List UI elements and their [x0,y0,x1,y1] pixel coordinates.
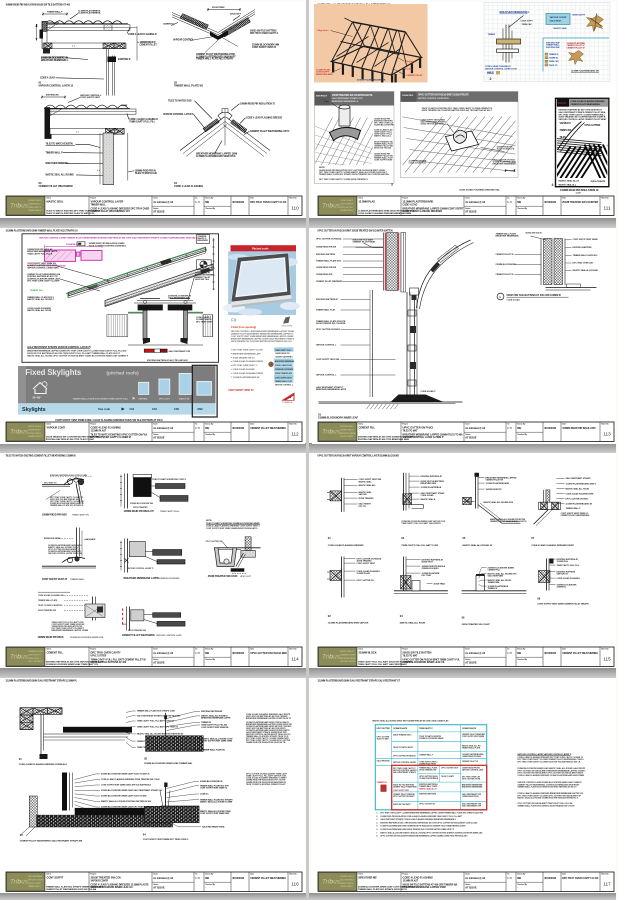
svg-text:TIMBER WALL P: TIMBER WALL P [28,885,43,888]
svg-text:MASTIC SEAL: MASTIC SEAL [47,199,64,203]
svg-text:215MM BLOCKWORK: 215MM BLOCKWORK [158,577,180,579]
svg-text:Drawn By: Drawn By [205,872,214,875]
svg-text:1 : 5: 1 : 5 [195,427,200,430]
svg-text:1 : 5: 1 : 5 [195,876,200,879]
svg-text:02: 02 [144,756,147,760]
svg-text:CODE 4 LEAD: CODE 4 LEAD [40,76,55,79]
svg-text:MASTIC SEAL ALL R: MASTIC SEAL ALL R [558,179,579,182]
svg-text:25X38 TREATED SW C: 25X38 TREATED SW C [393,733,412,736]
svg-text:116: 116 [291,881,299,886]
svg-text:50X25 SW TILE B: 50X25 SW TILE B [525,233,542,235]
svg-text:MASTIC SEAL A: MASTIC SEAL A [28,425,42,428]
svg-text:115: 115 [603,656,611,661]
svg-text:Date: Date [250,872,254,875]
svg-text:EXISTING RAFTERS AT 400 CTRS T: EXISTING RAFTERS AT 400 CTRS TILES TO MA… [46,438,95,441]
svg-text:BREATHER MEMBRANE L: BREATHER MEMBRANE L [492,162,517,165]
svg-text:VAPOUR CONTROL LAYER EXIS: VAPOUR CONTROL LAYER EXIS [418,96,449,99]
svg-text:25X38 TREATED SW COUNTER: 25X38 TREATED SW COUNTER [562,200,598,203]
svg-text:TIMBER WALL PLATE M12 STRAPS 5: TIMBER WALL PLATE M12 STRAPS 50X25 SW TI… [358,887,408,890]
svg-text:CODE 4 LEAD FLASHING DRESSED 2: CODE 4 LEAD FLASHING DRESSED 25X38 TREAT… [101,778,160,781]
svg-text:12.5MM PLASTERBOARD SKIM GALV: 12.5MM PLASTERBOARD SKIM GALV RESTRAINT … [6,679,78,682]
svg-text:100MM RIGID PIR INSULATIO: 100MM RIGID PIR INSULATIO [562,427,595,430]
svg-text:CONT SOFFIT VEN: CONT SOFFIT VEN [393,790,409,792]
svg-text:CONT SOFFIT VENT: CONT SOFFIT VENT [80,97,101,99]
svg-text:12.5MM PLASTERBOARD SKIM 25X38: 12.5MM PLASTERBOARD SKIM 25X38 TREATED S… [380,828,455,831]
svg-text:Scale: Scale [153,424,158,426]
svg-text:25X38 TREATED: 25X38 TREATED [358,496,374,499]
svg-text:Status: Status [153,657,158,660]
svg-text:CEMENT FILLET WEATHERING: CEMENT FILLET WEATHERING [570,103,600,106]
svg-text:12.5MM PLASTERBOARD SK: 12.5MM PLASTERBOARD SK [233,376,260,379]
svg-text:06/10/2023: 06/10/2023 [544,876,557,879]
svg-text:VAPOUR C: VAPOUR C [559,122,571,125]
svg-text:12.5MM PLASTERBOARD SKIM TIMBE: 12.5MM PLASTERBOARD SKIM TIMBER WALL PLA… [6,229,79,232]
svg-text:111: 111 [603,205,610,210]
svg-text:08: 08 [537,596,540,600]
svg-text:50X25 SW TILE BATTEN: 50X25 SW TILE BATTEN [402,650,431,654]
svg-text:215MM BLOCKWORK: 215MM BLOCKWORK [374,124,395,126]
svg-text:MASTIC SEAL ALL ROUND: MASTIC SEAL ALL ROUND [572,269,598,272]
svg-text:DPC TRAY OVER CAVITY: DPC TRAY OVER CAVITY [91,650,121,654]
svg-text:Sc: Sc [195,197,197,199]
svg-text:CODE 4 LEAD FLASHING DRESSED 2: CODE 4 LEAD FLASHING DRESSED 215MM BLO [19,762,68,765]
svg-text:TILES TO MAT: TILES TO MAT [402,654,418,657]
svg-text:CODE 4 LEAD FLASHING DRESSED: CODE 4 LEAD FLASHING DRESSED [327,543,363,546]
svg-text:VAPOUR CONTRO: VAPOUR CONTRO [340,660,356,663]
svg-text:AT ISSUE: AT ISSUE [465,660,477,664]
svg-text:EXISTING RAFTERS AT 400 CTRS V: EXISTING RAFTERS AT 400 CTRS VAPOUR [147,359,188,362]
svg-text:CONT SOFFIT VENT 25: CONT SOFFIT VENT 25 [252,46,277,48]
svg-text:50X25 SW T: 50X25 SW T [230,13,242,15]
svg-text:MASTIC SEAL ALL ROUND MASTIC S: MASTIC SEAL ALL ROUND MASTIC SEAL ALL RO… [380,831,483,834]
svg-text:Sc: Sc [507,197,509,199]
svg-text:1 : 5: 1 : 5 [195,651,200,654]
svg-text:Checked By: Checked By [205,658,216,660]
svg-text:MASTIC SEAL ALL ROUND 1: MASTIC SEAL ALL ROUND 1 [27,298,55,301]
svg-text:UPVC GUTTER ON F: UPVC GUTTER ON F [441,767,459,769]
svg-text:CONT SOFFIT V: CONT SOFFIT V [340,203,354,205]
svg-text:8.: 8. [376,835,378,837]
svg-text:Sheet No: Sheet No [601,647,609,650]
svg-text:DPC TRAY OVER CAVITY CLOSER 25: DPC TRAY OVER CAVITY CLOSER 25X38 TREATE… [319,178,368,181]
svg-text:CEMENT FILLET WEATHERIN: CEMENT FILLET WEATHERIN [39,184,73,187]
svg-text:AT ISSUE: AT ISSUE [465,436,477,440]
svg-text:Drawn By: Drawn By [205,647,214,650]
svg-text:BREATHER MEMBRANE: BREATHER MEMBRANE [495,235,519,238]
svg-text:UPVC GUTTER: UPVC GUTTER [584,125,600,127]
svg-text:Bracing: Bracing [404,68,412,70]
svg-text:Status: Status [465,882,470,885]
svg-text:Sc: Sc [507,873,509,875]
svg-text:CODE 4 L: CODE 4 L [200,792,210,795]
svg-text:CODE 4 LEAD FLASHING DR: CODE 4 LEAD FLASHING DR [38,594,64,597]
svg-text:TIMBER WALL PLAT: TIMBER WALL PLAT [275,380,293,383]
svg-text:100MM: 100MM [121,105,128,107]
svg-text:UPVC GUTTER ON FASCIA BRKT 25X: UPVC GUTTER ON FASCIA BRKT 25X38 TREATE [418,93,469,96]
svg-text:Sheet No: Sheet No [289,423,297,426]
svg-text:Client: Client [46,872,51,875]
svg-text:DPC TRAY OVER CAV: DPC TRAY OVER CAV [572,262,593,265]
svg-text:VAPOUR CONTROL LAYER 12.5MM P: VAPOUR CONTROL LAYER 12.5MM P [402,436,443,439]
svg-text:100MM RIGID PIR INS: 100MM RIGID PIR INS [316,267,337,269]
svg-text:Sheet No: Sheet No [601,196,609,199]
svg-text:Date: Date [250,647,254,650]
svg-text:Tribus: Tribus [322,878,341,885]
svg-text:CEMENT FILLET WEATHERING CONT: CEMENT FILLET WEATHERING CONT S [490,520,527,523]
svg-text:Client: Client [358,196,363,199]
svg-text:25X38 TREATED SW COUNTER: 25X38 TREATED SW COUNTER [316,322,346,325]
svg-text:25X38 TREATED: 25X38 TREATED [133,505,148,508]
svg-text:25X38 TREA: 25X38 TREA [433,582,445,585]
svg-text:Project: Project [402,647,408,650]
svg-text:As indicated @ A3: As indicated @ A3 [153,200,174,203]
svg-text:TILES TO MATCH EXISTING TILES: TILES TO MATCH EXISTING TILES TO MATCH E… [46,211,95,214]
svg-text:Checked By: Checked By [517,658,528,660]
svg-text:03: 03 [401,535,404,539]
svg-text:100MM RIGID PIR INSULATI: 100MM RIGID PIR INSULATI [124,509,154,512]
svg-text:12.5M: 12.5M [575,192,581,194]
svg-text:Status: Status [153,206,158,209]
svg-text:TIMBER WALL PLATE M12: TIMBER WALL PLATE M12 [572,254,598,257]
svg-text:12.5MM PLASTERBOA: 12.5MM PLASTERBOA [419,777,439,780]
svg-text:CONT SOFFIT VENT 25MM 12.: CONT SOFFIT VENT 25MM 12. [200,787,228,789]
svg-text:7.: 7. [376,832,378,834]
svg-text:12.5MM PLASTERBOARD: 12.5MM PLASTERBOARD [485,481,509,484]
svg-text:100MM RIGID PIR IN: 100MM RIGID PIR IN [461,796,478,798]
svg-text:Client: Client [46,647,51,650]
svg-text:TIMBER WALL PLATE M12 STRAPS 2: TIMBER WALL PLATE M12 STRAPS 25X38 TREAT… [517,804,575,807]
svg-text:BREATHER MEMBRAN: BREATHER MEMBRAN [275,360,295,363]
svg-text:Drawn By: Drawn By [517,872,526,875]
svg-text:100MM RIGID PIR INSULATION 12.: 100MM RIGID PIR INSULATION 12. [560,188,599,191]
svg-text:UPVC GUTTER: UPVC GUTTER [91,655,107,657]
svg-text:25X38 TREAT: 25X38 TREAT [212,6,225,9]
svg-text:TIMBER WALL PLATE M12 STRAPS E: TIMBER WALL PLATE M12 STRAPS EXISTING RA… [517,785,577,788]
svg-text:CONT SOFFIT VENT: CONT SOFFIT VENT [275,377,293,379]
svg-text:12.5MM PLAST: 12.5MM PLAST [356,571,371,574]
svg-text:CONT SOFFIT VENT 25MM 100MM RI: CONT SOFFIT VENT 25MM 100MM RIGID PIR IN… [206,526,258,529]
svg-text:EXISTING RAFTERS AT: EXISTING RAFTERS AT [316,298,339,301]
svg-text:215MM BLOCKWORK INNER LEAF GAL: 215MM BLOCKWORK INNER LEAF GALV RESTRAIN… [101,789,163,792]
svg-text:CEMENT FILLET WEATHERING: CEMENT FILLET WEATHERING [562,651,598,654]
svg-text:CEMENT FILLET: CEMENT FILLET [340,210,355,212]
svg-text:AT ISSUE: AT ISSUE [465,209,477,213]
svg-text:12.5MM PLAS: 12.5MM PLAS [358,199,375,203]
svg-text:TIMBER W: TIMBER W [201,722,211,724]
svg-text:GALV RESTRAINT STRAPS: GALV RESTRAINT STRAPS [565,477,591,480]
svg-text:07: 07 [531,535,534,539]
svg-text:Status: Status [465,657,470,660]
svg-text:UPVC GUTTER ON FASC: UPVC GUTTER ON FASC [565,497,588,500]
svg-text:MASTIC SE: MASTIC SE [179,398,190,401]
svg-text:CODE 4 LEAD FLAS: CODE 4 LEAD FLAS [275,364,293,367]
svg-text:CEMENT FILLET WEATHERI: CEMENT FILLET WEATHERI [393,785,417,788]
svg-text:CODE 4 LEAD FLASHING DRESSED 1: CODE 4 LEAD FLASHING DRESSED 12.5MM PLAS… [517,773,584,776]
svg-text:EXISTING: EXISTING [139,399,148,401]
svg-text:MASTIC SEAL ALL ROUND EXIS: MASTIC SEAL ALL ROUND EXIS [483,501,513,504]
svg-text:12.5MM PLASTERBOARD SK: 12.5MM PLASTERBOARD SK [565,502,592,505]
svg-text:Status: Status [153,433,158,436]
svg-text:1: 1 [499,295,501,299]
svg-text:DPC TRAY OVER CAVITY CLOS: DPC TRAY OVER CAVITY CLOS [250,200,286,203]
svg-text:CODE 4 LEAD: CODE 4 LEAD [506,298,520,301]
svg-text:DPC TRAY OVER CAVITY C: DPC TRAY OVER CAVITY C [250,31,279,34]
svg-text:25X38 TREATED SW COUN: 25X38 TREATED SW COUN [208,574,238,577]
svg-text:MASTIC SEAL ALL ROUN: MASTIC SEAL ALL ROUN [399,621,425,624]
svg-text:As indicated @ A3: As indicated @ A3 [153,651,174,654]
svg-text:EXISTING RAFT: EXISTING RAFT [340,425,354,428]
svg-text:TILES TO MATCH EXISTING CONT S: TILES TO MATCH EXISTING CONT S [152,478,187,481]
svg-text:CEMENT FILLET WEATHERING: CEMENT FILLET WEATHERING [250,427,286,430]
svg-text:C06: C06 [174,407,179,411]
svg-text:CEMENT FILL: CEMENT FILL [487,569,500,571]
svg-text:As indicated @ A3: As indicated @ A3 [465,651,486,654]
svg-text:CEMENT FILLET WEATHERING 50X25: CEMENT FILLET WEATHERING 50X25 SW TILE B… [46,887,96,890]
svg-text:CONT SOFFIT VENT 25MM DPC TRAY: CONT SOFFIT VENT 25MM DPC TRAY OVER C [143,838,189,841]
svg-text:TIMBER WALL PLATE M1: TIMBER WALL PLATE M1 [202,748,226,751]
svg-text:MASTIC SEAL ALL ROUND EXISTING: MASTIC SEAL ALL ROUND EXISTING RAFTERS A… [137,732,184,735]
svg-text:UPVC GUTTER: UPVC GUTTER [376,728,390,730]
svg-text:3: 3 [391,182,393,186]
svg-text:Date: Date [562,872,566,875]
svg-text:EXISTING RAFTERS: EXISTING RAFTERS [572,246,592,249]
svg-text:(pitched roofs): (pitched roofs) [107,371,140,376]
svg-text:Sheet No: Sheet No [601,423,609,426]
svg-text:TIMBER WALL P: TIMBER WALL P [565,507,581,510]
svg-text:UPVC GUTTER ON FASCIA: UPVC GUTTER ON FASCIA [316,238,342,241]
svg-text:CEMENT FILLET WEATHERING UPVC: CEMENT FILLET WEATHERING UPVC [250,130,290,133]
svg-text:Sc: Sc [195,648,197,650]
svg-text:BREATHER ME: BREATHER ME [358,875,377,879]
svg-text:As indicated @ A3: As indicated @ A3 [153,876,174,879]
svg-text:Tribus: Tribus [322,202,341,209]
svg-text:04: 04 [143,832,146,836]
svg-text:06/10/2023: 06/10/2023 [544,200,557,203]
svg-text:215MM BLOCKWORK INNER LEAF: 215MM BLOCKWORK INNER LEAF [318,416,359,419]
svg-text:2.: 2. [376,815,378,817]
svg-text:Sc: Sc [195,873,197,875]
svg-text:VAPOUR CONTROL LAYER CEMENT FI: VAPOUR CONTROL LAYER CEMENT FILLET WEAT [558,118,607,121]
svg-text:TILES TO MATCH EXI: TILES TO MATCH EXI [135,171,158,174]
svg-text:VAPOUR CONTROL LAYER TI: VAPOUR CONTROL LAYER TI [127,567,154,570]
svg-text:CEMENT FILLET W: CEMENT FILLET W [495,274,513,276]
svg-text:Sc: Sc [195,424,197,426]
svg-text:BREATHER MEMBRANE: BREATHER MEMBRANE [461,785,482,788]
svg-text:NOTE:: NOTE: [319,167,325,169]
svg-text:25X38 TREATED SW COUNT: 25X38 TREATED SW COUNT [461,622,490,625]
svg-text:Scale: Scale [465,424,470,426]
svg-text:75MM CAVITY F: 75MM CAVITY F [419,727,433,730]
svg-text:75MM CAVITY FULL FILL BATT DPC: 75MM CAVITY FULL FILL BATT DPC TRAY OV [137,725,179,728]
svg-text:UPVC GUTTER ON: UPVC GUTTER ON [356,579,374,581]
svg-text:VAPOUR CONTROL LAYER: VAPOUR CONTROL LAYER [91,199,124,203]
svg-text:06/10/2023: 06/10/2023 [232,200,245,203]
svg-text:MB: MB [205,651,209,654]
svg-text:CONT SOFFIT VENT 25MM CEMENT F: CONT SOFFIT VENT 25MM CEMENT FILLET WEAT… [537,602,589,605]
svg-text:CONT SOFFIT V: CONT SOFFIT V [28,654,42,656]
svg-text:VAPOUR CONTROL LAYER VAPO: VAPOUR CONTROL LAYER VAPO [27,266,59,269]
svg-text:TIMBER WALL PLATE M1: TIMBER WALL PLATE M1 [174,84,204,87]
svg-text:VAPOUR CONTROL LAYER: VAPOUR CONTROL LAYER [393,760,416,763]
svg-text:TIMBER WALL: TIMBER WALL [70,577,85,580]
svg-text:CONT SOFFIT VENT 25: CONT SOFFIT VENT 25 [42,577,68,580]
svg-text:100MM RIGID PIR INSULATION COD: 100MM RIGID PIR INSULATION CODE 4 LEAD F… [380,814,463,817]
svg-text:VAPOUR CONTROL LAYER VAPOUR CO: VAPOUR CONTROL LAYER VAPOUR CONTROL LAYE… [517,752,571,755]
svg-text:215MM BLOCKWO: 215MM BLOCKWO [28,651,44,653]
svg-text:BREATHER MEMBRA: BREATHER MEMBRA [46,162,69,165]
svg-text:25X38 TREATED SW: 25X38 TREATED SW [275,372,292,375]
svg-text:Checked By: Checked By [517,883,528,885]
svg-text:CEMENT FILLET: CEMENT FILLET [340,876,355,878]
svg-text:CODE 4 LEAD FLASHING D: CODE 4 LEAD FLASHING D [485,65,511,68]
svg-text:As indicated @ A3: As indicated @ A3 [465,427,486,430]
svg-text:HBS: HBS [487,71,495,75]
svg-text:MB: MB [517,651,521,654]
svg-text:TILES TO MATCH EXIST: TILES TO MATCH EXIST [393,746,414,749]
svg-text:TIMBER: TIMBER [487,34,495,36]
svg-text:112: 112 [291,432,299,437]
svg-text:02: 02 [327,614,330,618]
svg-text:215MM BLOCKWORK INNER LEAF CE: 215MM BLOCKWORK INNER LEAF CE [402,661,444,664]
svg-text:NOTE:: NOTE: [206,520,212,522]
svg-text:CONT SOFFIT VENT: CONT SOFFIT VENT [356,562,375,564]
svg-text:06/10/2023: 06/10/2023 [544,651,557,654]
svg-text:VAPOUR CONTR: VAPOUR CONTR [91,879,109,882]
svg-text:CONT SOFFIT VENT 25M: CONT SOFFIT VENT 25M [316,359,340,361]
svg-text:TIMBER WALL PLATE: TIMBER WALL PLATE [461,746,480,749]
svg-text:06/10/2023: 06/10/2023 [232,876,245,879]
svg-text:215MM BLOCKWORK IN: 215MM BLOCKWORK IN [200,781,223,783]
svg-text:MASTIC SEAL ALL: MASTIC SEAL ALL [358,484,376,487]
svg-text:DPC TRAY OVER CAVITY CLOSER: DPC TRAY OVER CAVITY CLOSER [27,279,60,282]
svg-text:215MM BLOCKWORK INNER LEAF TIM: 215MM BLOCKWORK INNER LEAF TIMBER WAL [144,761,193,764]
svg-text:VAPOUR CONTROL LAYER C: VAPOUR CONTROL LAYER C [163,113,194,116]
svg-text:TIMBER WALL PLATE M12 STRAPS: TIMBER WALL PLATE M12 STRAPS [196,57,234,60]
svg-text:CONT SOFFIT VENT 25MM 75MM: CONT SOFFIT VENT 25MM 75MM [202,740,233,742]
svg-text:Checked By: Checked By [517,434,528,436]
svg-text:25X38 TREATED SW COU: 25X38 TREATED SW COU [91,875,122,879]
svg-text:Drawn By: Drawn By [517,647,526,650]
svg-text:CEMENT FILL: CEMENT FILL [30,290,44,292]
svg-text:TILES TO MATC: TILES TO MATC [340,435,354,438]
svg-text:DPC TRAY OVER CAVITY CLOS: DPC TRAY OVER CAVITY CLOS [562,876,598,879]
svg-text:TIMBER WALL PLATE M12: TIMBER WALL PLATE M12 [316,260,342,263]
svg-text:CODE 4 LEAD FLA: CODE 4 LEAD FLA [408,161,426,164]
svg-text:VAPOUR CONTROL LAYE: VAPOUR CONTROL LAYE [461,768,483,771]
svg-text:Status: Status [153,882,158,885]
svg-text:CONT SOFFIT VENT 25MM: CONT SOFFIT VENT 25MM [461,736,484,738]
svg-text:VAPOUR CONTROL L: VAPOUR CONTROL L [275,383,294,386]
svg-text:Tribus: Tribus [322,429,341,436]
svg-text:CODE 4 LEAD FLASHING DRESSED E: CODE 4 LEAD FLASHING DRESSED EXISTI [531,543,574,546]
svg-text:5.: 5. [376,825,378,827]
svg-text:MB: MB [517,200,521,203]
svg-text:CODE 4 LEAD FLASHING: CODE 4 LEAD FLASHING [91,426,121,430]
svg-text:BREATHER MEMB: BREATHER MEMB [340,432,356,435]
svg-text:25X38 TREATED SW CO: 25X38 TREATED SW CO [233,356,255,359]
svg-text:15°-90°: 15°-90° [32,396,42,400]
svg-text:Date: Date [562,196,566,199]
svg-text:UPVC GUTTER O: UPVC GUTTER O [28,661,43,663]
svg-text:UPVC GUTTER ON FASCIA BRK: UPVC GUTTER ON FASCIA BRK [250,651,287,654]
svg-text:UPVC GUT: UPVC GUT [240,575,251,577]
svg-text:BREATHER MEMBRANE LA: BREATHER MEMBRANE LA [332,100,359,103]
svg-text:BREATHER MEMBRANE LAPPE: BREATHER MEMBRANE LAPPE [316,388,347,391]
svg-text:Client: Client [358,647,363,650]
svg-text:06/10/2023: 06/10/2023 [232,427,245,430]
svg-text:VAPOUR CONT: VAPOUR CONT [47,426,66,430]
svg-text:CEMENT FILL: CEMENT FILL [47,650,64,654]
svg-text:MASTIC SEAL ALL ROUND 100MM RI: MASTIC SEAL ALL ROUND 100MM RIGID PIR IN… [517,796,579,799]
svg-text:12.5MM PLASTE: 12.5MM PLASTE [28,199,42,202]
svg-text:12.5MM PLASTERBOARD SKIM VAPOU: 12.5MM PLASTERBOARD SKIM VAPOUR [327,621,368,624]
svg-text:CODE 4 LEAD F: CODE 4 LEAD F [340,885,354,888]
svg-text:CONT SOFFI: CONT SOFFI [520,20,532,22]
svg-text:Status: Status [465,433,470,436]
svg-text:EXISTING RAFTERS AT 400 CTRS B: EXISTING RAFTERS AT 400 CTRS BREATHER ME… [358,438,409,441]
svg-text:EXISTING RAFTERS AT: EXISTING RAFTERS AT [201,710,223,713]
svg-text:CONT SOFFIT VENT 25MM VA: CONT SOFFIT VENT 25MM VA [201,725,229,728]
svg-text:75MM CAVITY FU: 75MM CAVITY FU [72,513,90,516]
svg-text:25X38 TREATED SW: 25X38 TREATED SW [419,768,436,771]
svg-text:215MM BLOCKWORK: 215MM BLOCKWORK [495,264,516,266]
svg-text:100MM RIGID PIR INSUL: 100MM RIGID PIR INSUL [38,636,65,639]
svg-text:Pitched roofs: Pitched roofs [252,247,269,251]
svg-text:50X25 SW TILE BATTENS AT 400: 50X25 SW TILE BATTENS AT 400 [91,661,127,664]
svg-text:Client: Client [358,423,363,426]
svg-text:Sc: Sc [507,424,509,426]
svg-text:75MM CAVITY FULL FILL BATT GAL: 75MM CAVITY FULL FILL BATT GALV RESTRAIN… [358,662,408,665]
svg-text:CODE 4 LEAD FLASHING D: CODE 4 LEAD FLASHING D [128,33,157,36]
svg-text:MASTIC SEAL A: MASTIC SEAL A [420,497,435,500]
svg-text:Project: Project [402,196,408,199]
svg-text:CEMENT FILLET: CEMENT FILLET [140,44,158,46]
svg-text:Drawn By: Drawn By [517,196,526,199]
svg-text:75MM CAVITY F: 75MM CAVITY F [28,656,42,659]
svg-text:Skylights: Skylights [22,407,46,413]
svg-text:UPVC GUTT: UPVC GUTT [159,399,171,401]
svg-text:1 : 5: 1 : 5 [507,427,512,430]
svg-text:50X25 SW TI: 50X25 SW TI [421,561,433,563]
svg-text:CEMENT FILLET W: CEMENT FILLET W [566,47,584,49]
svg-text:03: 03 [20,833,23,837]
svg-text:GALV RESTRAINT STR: GALV RESTRAINT STR [168,297,190,300]
svg-text:TILES TO MATC: TILES TO MATC [441,775,455,778]
svg-text:TIMBER WALL P: TIMBER WALL P [47,10,63,13]
svg-text:CEMENT FILLET WEATHERING 12.5: CEMENT FILLET WEATHERING 12.5 [91,210,131,213]
svg-text:100MM RIGID PIR INSULATION 75: 100MM RIGID PIR INSULATION 75 [240,102,276,105]
svg-text:VAPOUR CONTRO: VAPOUR CONTRO [28,878,44,881]
svg-text:TIMBER WAL: TIMBER WAL [487,580,500,583]
svg-text:MASTIC SEAL ALL ROUN: MASTIC SEAL ALL ROUN [565,487,589,490]
svg-text:GALV RESTRAI: GALV RESTRAI [376,759,389,762]
svg-text:Ring beam: Ring beam [405,61,415,63]
svg-text:CEMENT FILLET WEATHERI: CEMENT FILLET WEATHERI [316,280,343,283]
svg-text:MB: MB [517,427,521,430]
svg-text:Client: Client [358,872,363,875]
svg-text:VAPOUR CONTROL: VAPOUR CONTROL [173,38,194,41]
svg-text:Scale: Scale [465,873,470,875]
svg-text:CEMENT FILLET W: CEMENT FILLET W [461,761,477,763]
svg-text:12.5MM PLASTERBOARD SKIM T: 12.5MM PLASTERBOARD SKIM T [565,482,596,485]
svg-text:VAPOUR CONTROL L: VAPOUR CONTROL L [316,344,337,347]
svg-text:MB: MB [205,200,209,203]
svg-text:1 : 5: 1 : 5 [195,200,200,203]
svg-text:2: 2 [489,77,491,81]
svg-text:CODE 4 LEAD FLASHING DRESSED G: CODE 4 LEAD FLASHING DRESSED GAL [459,188,500,191]
svg-text:12.5MM PLAST: 12.5MM PLAST [91,429,107,432]
svg-text:12.5MM PLASTERBOARD SKIM 100MM: 12.5MM PLASTERBOARD SKIM 100MM RIGID PIR… [380,824,465,827]
